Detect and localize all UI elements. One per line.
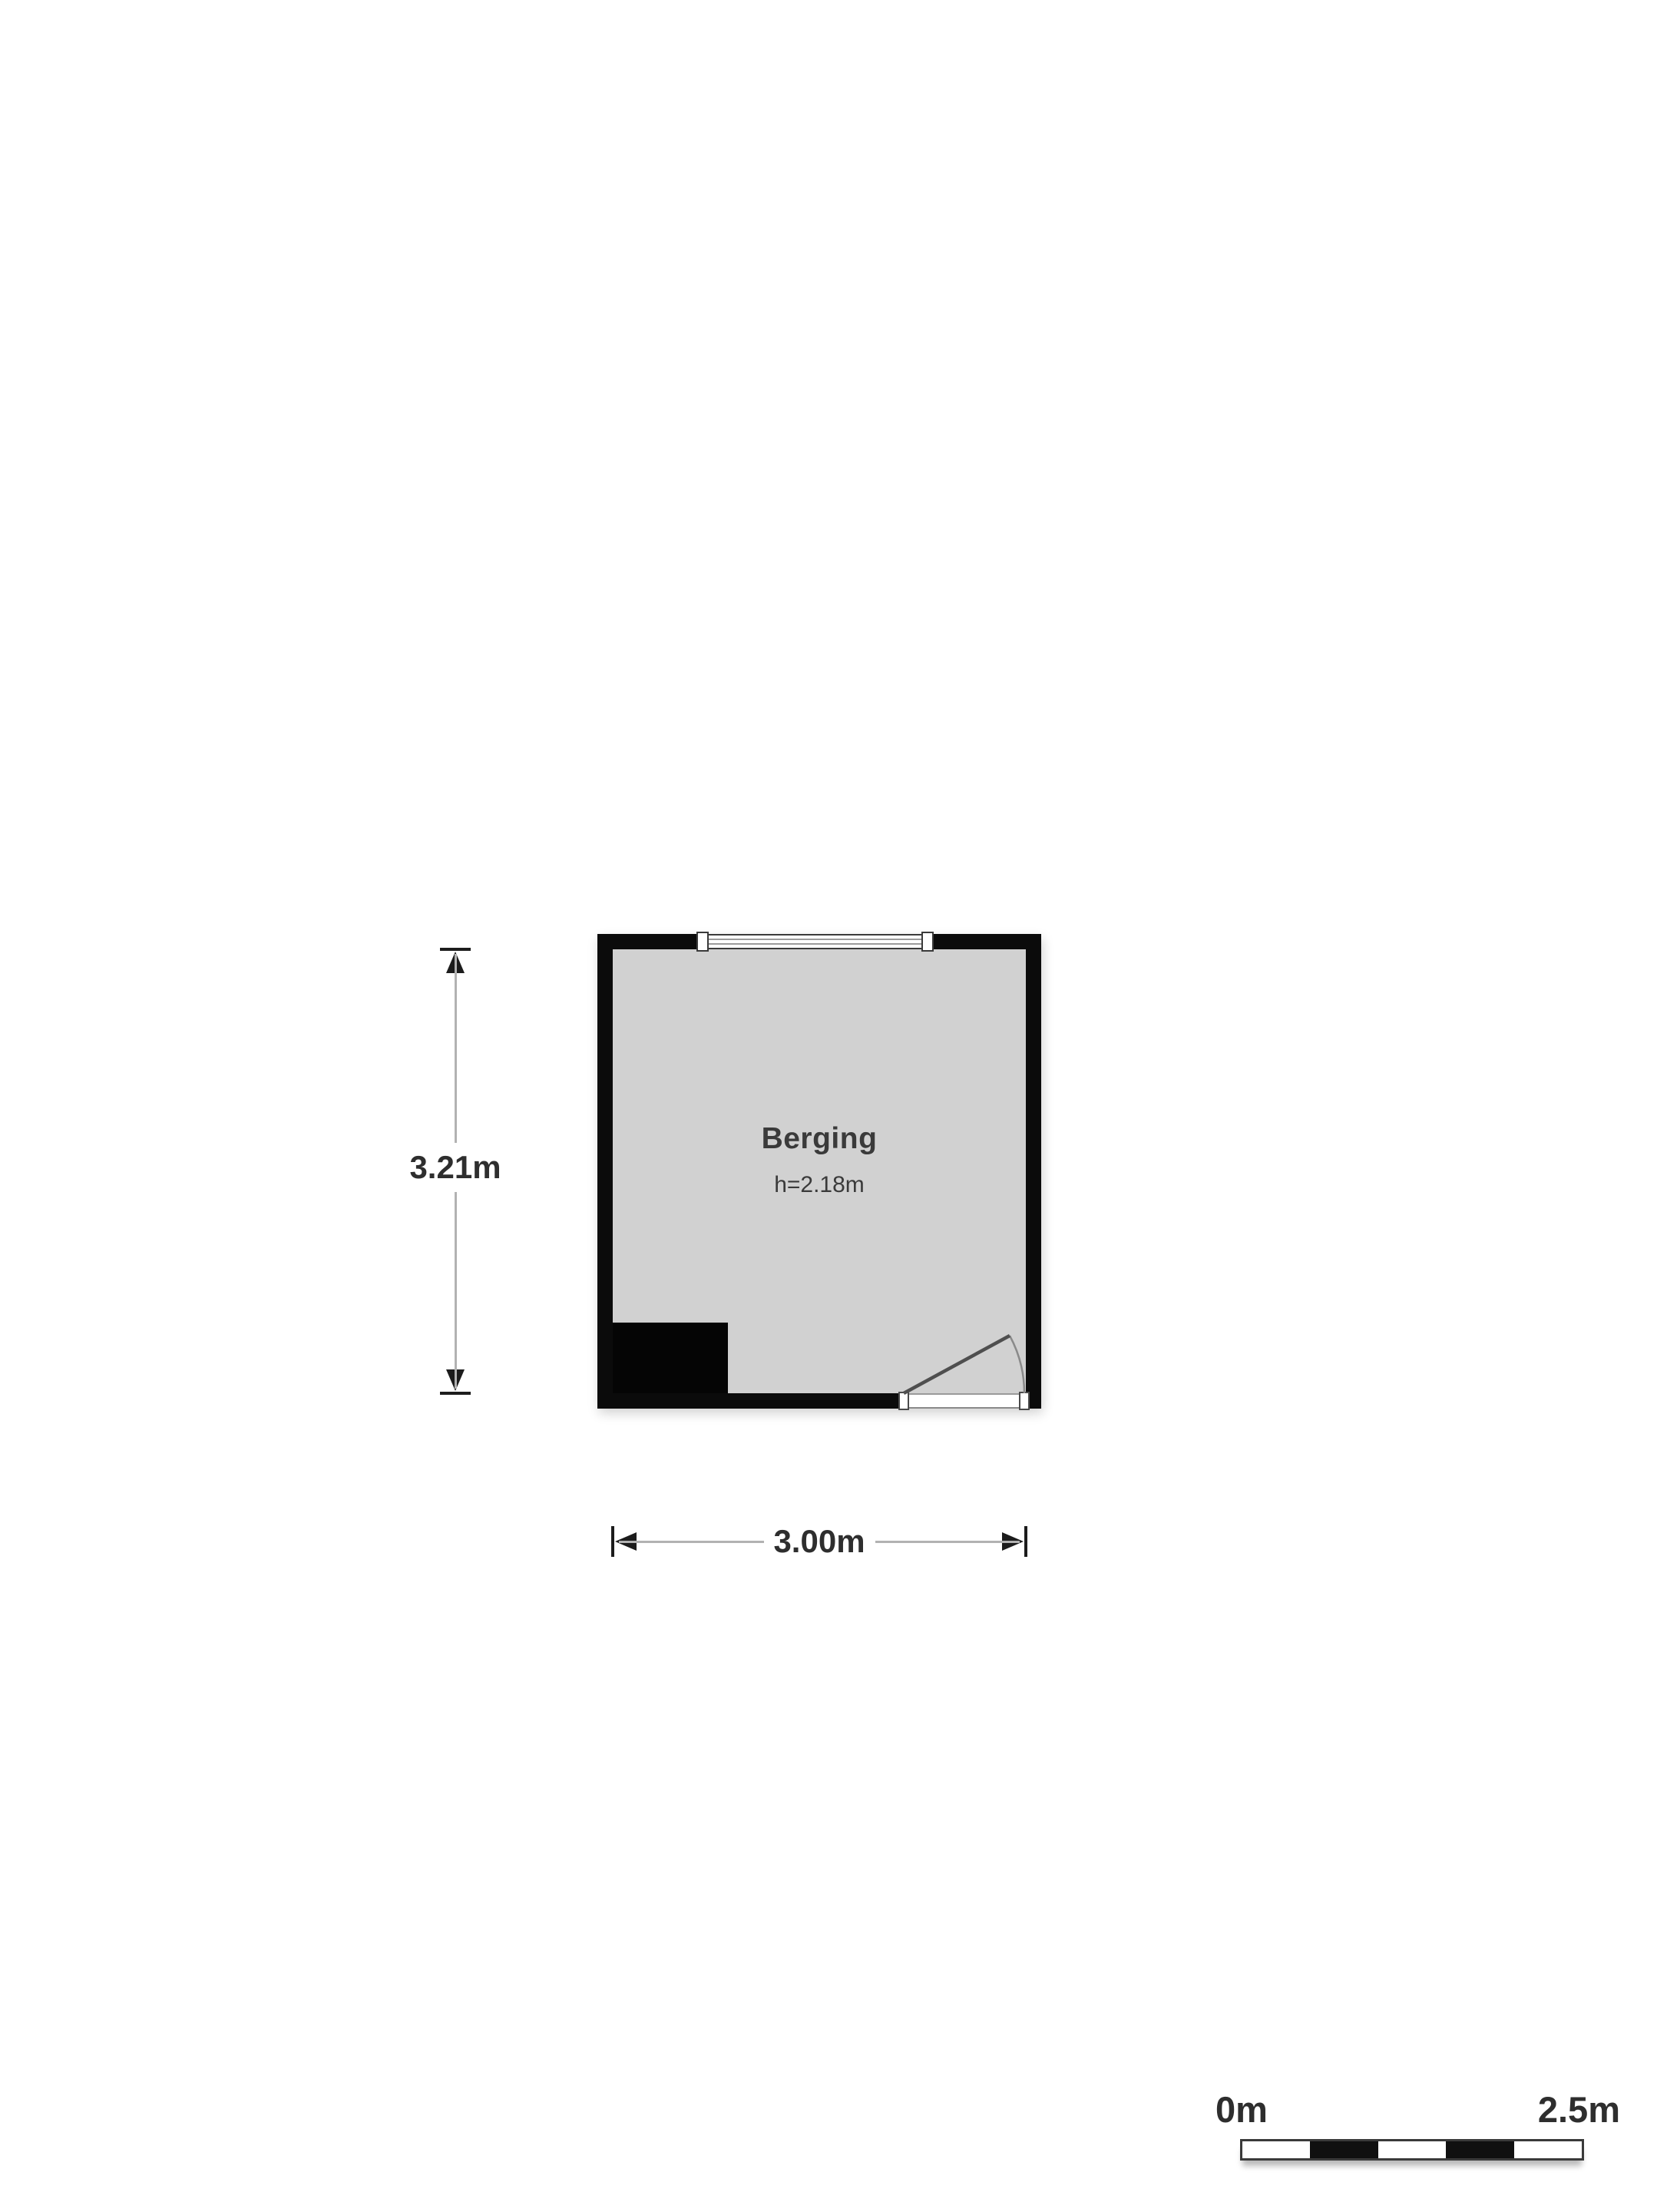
dimension-line: [875, 1541, 1020, 1543]
dimension-horizontal-label: 3.00m: [769, 1524, 869, 1559]
scale-segment: [1446, 2141, 1513, 2158]
scale-segment: [1514, 2141, 1582, 2158]
window-icon: [703, 934, 931, 949]
room-berging: Berging h=2.18m: [597, 934, 1041, 1409]
dimension-tick-left: [611, 1526, 614, 1557]
dimension-tick-top: [440, 948, 471, 951]
room-ceiling-height-label: h=2.18m: [597, 1172, 1041, 1198]
door-swing-icon: [891, 1325, 1037, 1413]
window-pane-line: [703, 939, 931, 940]
floor-plan-canvas: Berging h=2.18m 3.21m 3.00m 0m 2.5m: [0, 0, 1657, 2212]
scale-start-label: 0m: [1215, 2091, 1268, 2128]
dimension-vertical-label: 3.21m: [405, 1150, 505, 1185]
window-pane-line: [703, 943, 931, 945]
window-endcap-left: [696, 932, 709, 952]
dimension-line: [619, 1541, 764, 1543]
scale-segment: [1378, 2141, 1446, 2158]
window-endcap-right: [921, 932, 934, 952]
scale-bar: [1240, 2139, 1584, 2161]
storage-block: [613, 1323, 728, 1393]
dimension-tick-right: [1024, 1526, 1027, 1557]
scale-end-label: 2.5m: [1538, 2091, 1620, 2128]
dimension-tick-bottom: [440, 1392, 471, 1395]
scale-segment: [1310, 2141, 1378, 2158]
room-name-label: Berging: [597, 1122, 1041, 1156]
dimension-line: [455, 954, 457, 1143]
scale-segment: [1242, 2141, 1310, 2158]
dimension-line: [455, 1192, 457, 1389]
